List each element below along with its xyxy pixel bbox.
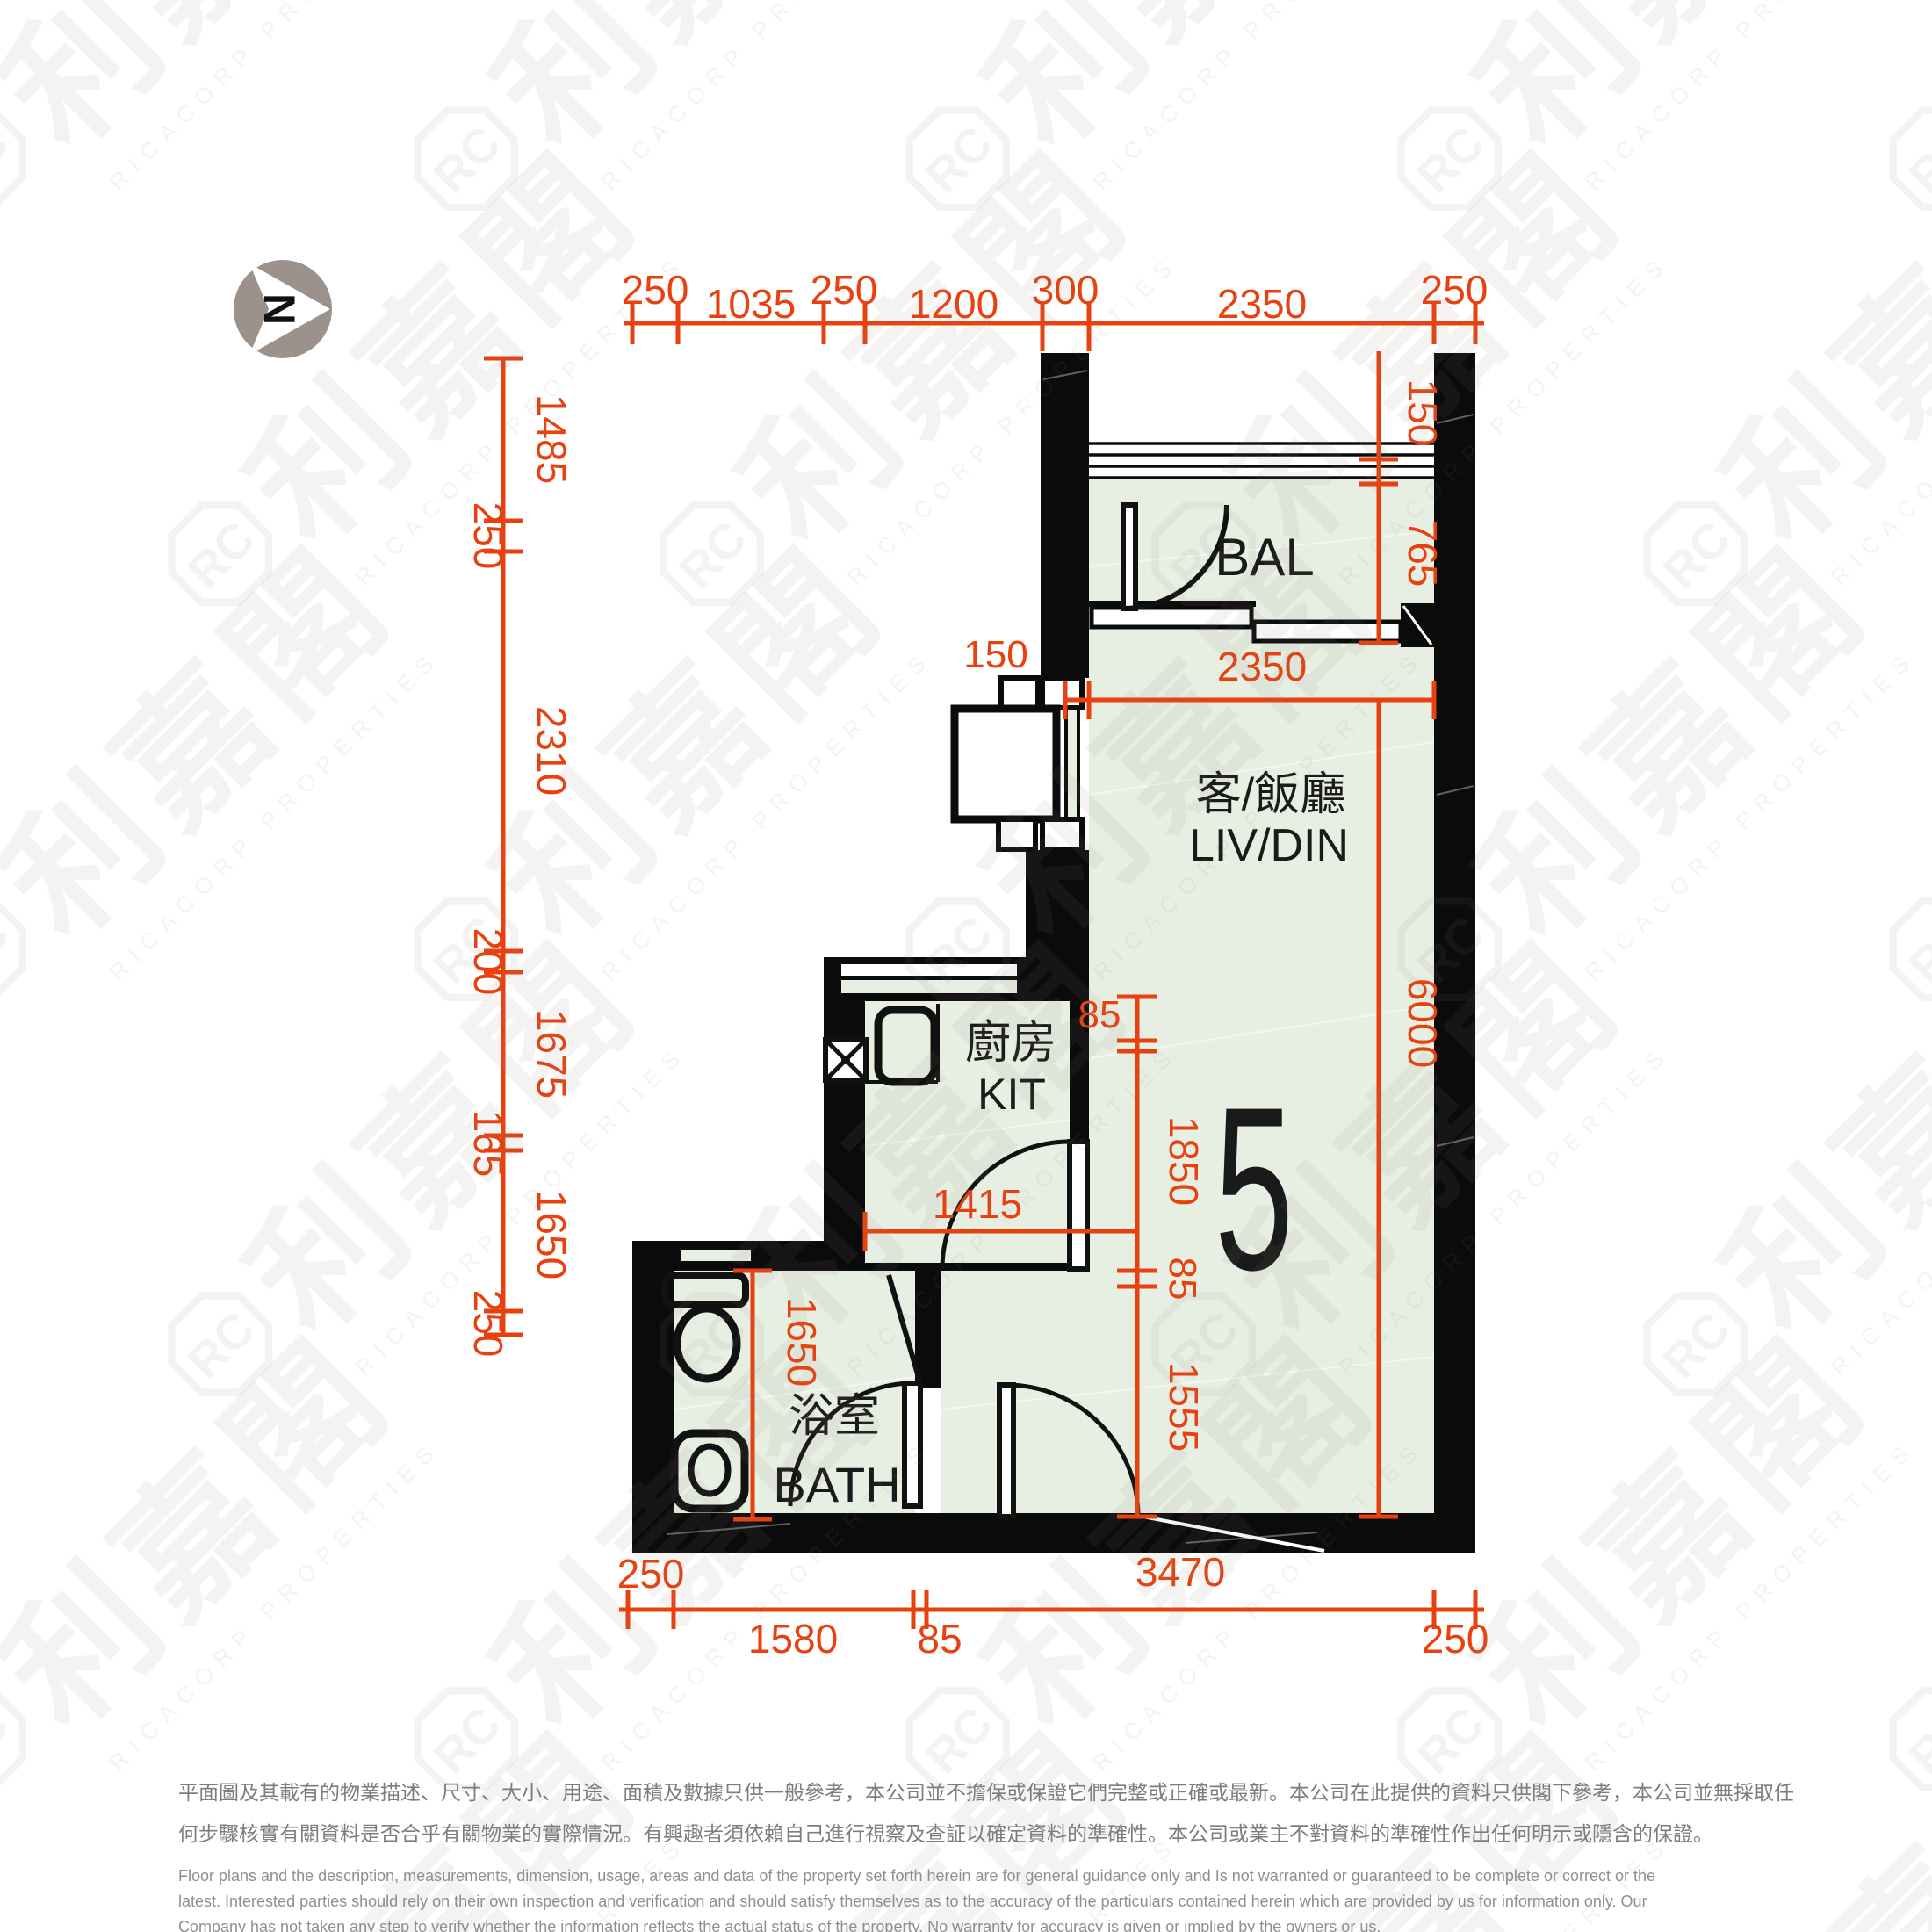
dim-liv-2350: 2350 bbox=[1217, 644, 1307, 689]
dim-left-250a: 250 bbox=[465, 502, 511, 570]
sliding-panel-a bbox=[1092, 608, 1251, 627]
kitchen-highwindow-white bbox=[841, 964, 1017, 976]
wall-west-upper bbox=[1041, 353, 1089, 678]
label-kitchen-en: KIT bbox=[977, 1070, 1046, 1119]
label-livdin-zh: 客/飯廳 bbox=[1196, 769, 1345, 820]
floorplan-page: N bbox=[0, 0, 1932, 1932]
dim-kit-1415: 1415 bbox=[933, 1181, 1022, 1227]
floor-plan-drawing: N bbox=[0, 0, 1932, 1932]
kitchen-door-leaf bbox=[1070, 1142, 1087, 1269]
dim-chain-85b: 85 bbox=[1161, 1258, 1204, 1301]
dim-bottom-250a: 250 bbox=[617, 1551, 685, 1597]
dim-window-150: 150 bbox=[963, 633, 1027, 676]
label-balcony: BAL bbox=[1215, 528, 1314, 587]
kitchen-highwindow-green bbox=[841, 980, 1017, 993]
ac-platform-box bbox=[955, 709, 1056, 819]
dim-left-1675: 1675 bbox=[529, 1009, 574, 1099]
dim-top-250b: 250 bbox=[811, 267, 878, 313]
west-window-glass bbox=[1068, 709, 1077, 821]
label-bath-zh: 浴室 bbox=[789, 1391, 880, 1442]
duct-dot bbox=[841, 1056, 850, 1064]
dim-bottom-3470: 3470 bbox=[1135, 1549, 1225, 1595]
dim-bottom-1580: 1580 bbox=[748, 1616, 838, 1662]
dim-left-1650: 1650 bbox=[529, 1190, 574, 1280]
dim-left-250b: 250 bbox=[465, 1290, 511, 1358]
dim-top-2350: 2350 bbox=[1217, 281, 1307, 327]
dim-chain-1555: 1555 bbox=[1161, 1362, 1207, 1452]
dim-liv-6000: 6000 bbox=[1400, 978, 1445, 1068]
north-label: N bbox=[255, 293, 304, 325]
dim-top-300: 300 bbox=[1032, 267, 1099, 313]
north-indicator: N bbox=[234, 260, 332, 358]
label-bath-en: BATH bbox=[773, 1457, 900, 1512]
dim-left-165: 165 bbox=[465, 1110, 511, 1178]
bath-vent-slit bbox=[681, 1250, 751, 1261]
unit-number: 5 bbox=[1215, 1059, 1294, 1319]
window-frame-tab bbox=[1001, 678, 1038, 708]
dim-chain-85a: 85 bbox=[1078, 993, 1121, 1036]
wall-kitchen-west bbox=[824, 957, 865, 1271]
label-livdin-en: LIV/DIN bbox=[1189, 820, 1349, 871]
entrance-door-leaf bbox=[999, 1385, 1013, 1517]
dim-top-250c: 250 bbox=[1421, 267, 1489, 313]
dim-left-1485: 1485 bbox=[529, 394, 574, 484]
label-kitchen-zh: 廚房 bbox=[965, 1018, 1056, 1069]
window-frame-tab bbox=[1042, 819, 1082, 849]
dim-top-1035: 1035 bbox=[706, 281, 796, 327]
balcony-door-leaf bbox=[1123, 505, 1135, 609]
bath-door-leaf bbox=[905, 1383, 920, 1506]
dim-right-765: 765 bbox=[1400, 520, 1445, 588]
dim-chain-1850: 1850 bbox=[1161, 1116, 1207, 1206]
dim-top-1200: 1200 bbox=[909, 281, 998, 327]
dim-right-150: 150 bbox=[1400, 379, 1445, 447]
wall-kitchen-sill bbox=[865, 1263, 1089, 1271]
dim-left-2310: 2310 bbox=[529, 706, 574, 796]
west-window-and-ac bbox=[955, 678, 1082, 849]
window-frame-tab bbox=[1042, 678, 1082, 708]
dim-left-200: 200 bbox=[465, 928, 511, 996]
window-frame-tab bbox=[998, 819, 1035, 849]
dim-bottom-85: 85 bbox=[917, 1616, 962, 1662]
dim-bath-1650: 1650 bbox=[779, 1297, 825, 1387]
dim-top-250a: 250 bbox=[622, 267, 689, 313]
dim-bottom-250b: 250 bbox=[1422, 1616, 1489, 1662]
